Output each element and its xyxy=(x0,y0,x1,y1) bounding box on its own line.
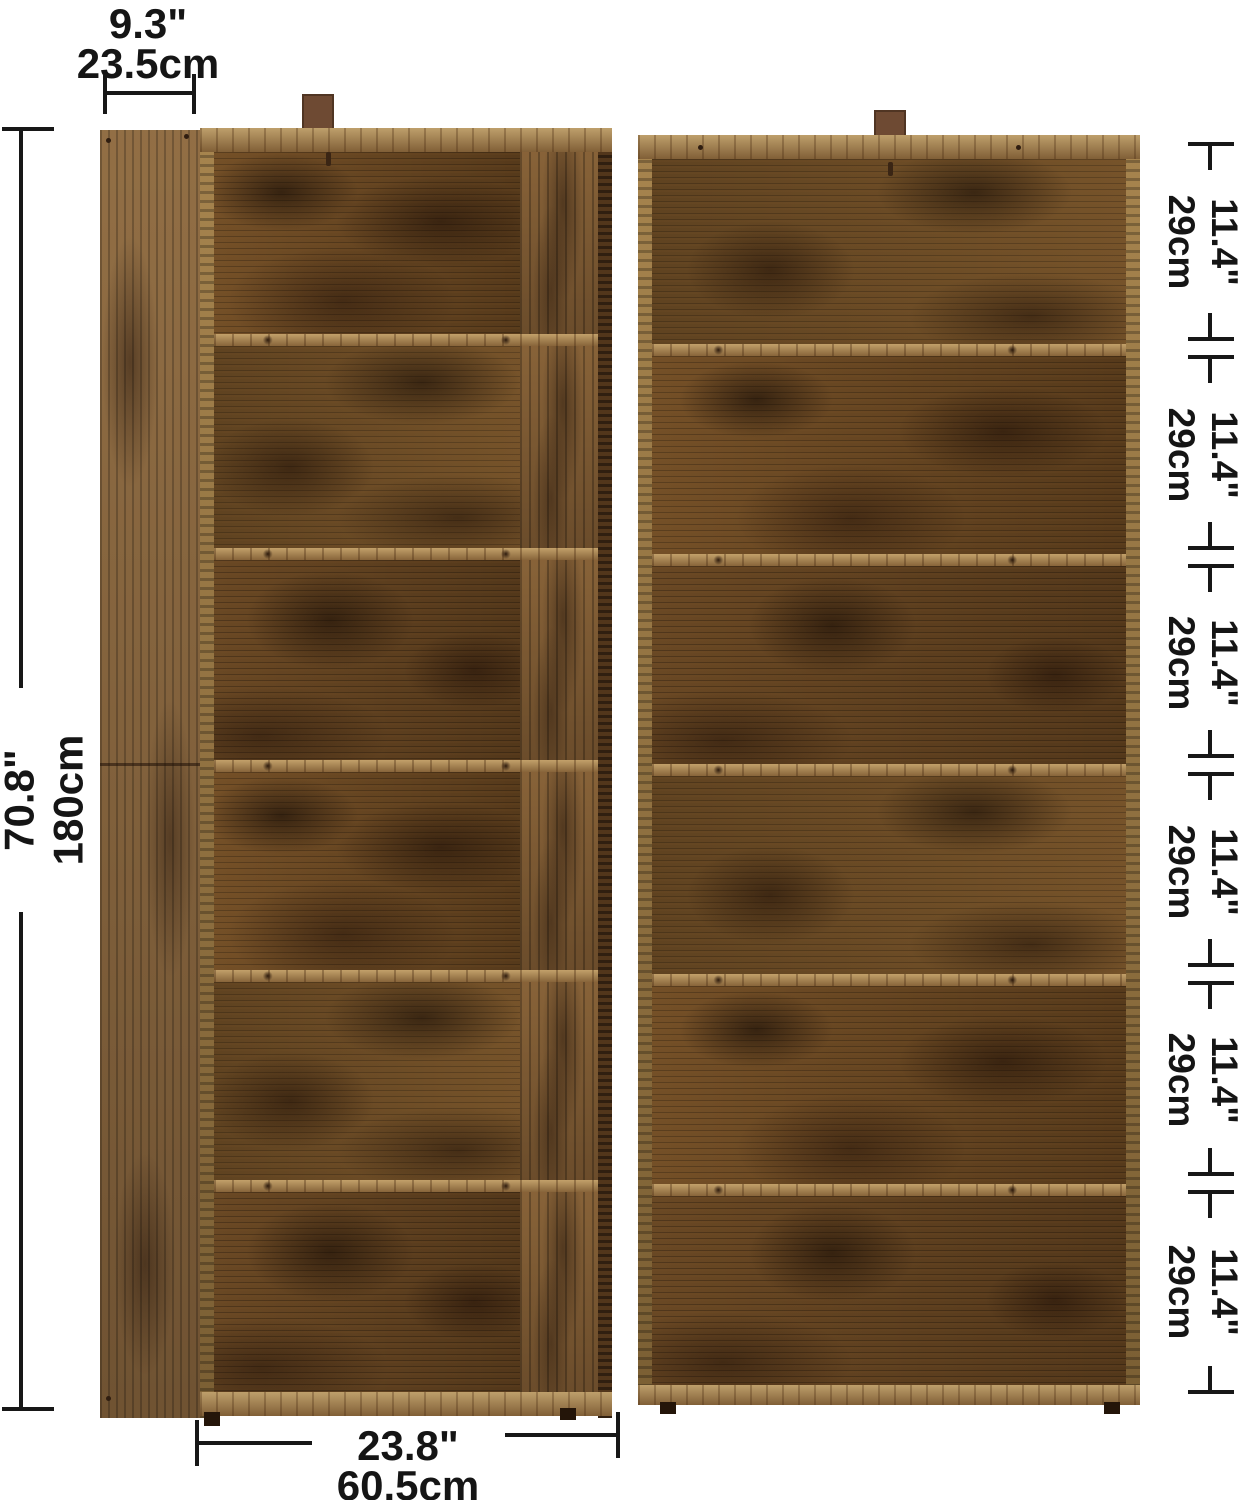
cabinet-foot xyxy=(660,1402,676,1414)
panel-seam xyxy=(100,763,200,766)
cabinet-foot xyxy=(1104,1402,1120,1414)
inner-side-wall xyxy=(520,1192,598,1392)
shelf-dim-stem xyxy=(1208,313,1212,337)
shelf-compartment xyxy=(214,152,520,334)
shelf-height-label: 11.4" 29cm xyxy=(1159,195,1245,290)
shelf-height-label: 11.4" 29cm xyxy=(1159,1245,1245,1340)
shelf-inches-label: 11.4" xyxy=(1202,1245,1245,1340)
depth-dim-tick xyxy=(192,74,196,114)
inner-side-wall xyxy=(520,772,598,970)
screw-icon xyxy=(184,134,189,139)
top-board xyxy=(638,135,1140,159)
shelf-cm-label: 29cm xyxy=(1159,1245,1202,1340)
shelf-inches-label: 11.4" xyxy=(1202,195,1245,290)
shelf-cm-label: 29cm xyxy=(1159,1033,1202,1128)
screw-icon xyxy=(698,145,703,150)
shelf-height-label: 11.4" 29cm xyxy=(1159,1033,1245,1128)
depth-dim-line xyxy=(103,91,196,95)
shelf-inches-label: 11.4" xyxy=(1202,825,1245,920)
product-dimension-diagram: 9.3" 23.5cm 70.8" 180cm 23.8" 60.5cm 11.… xyxy=(0,0,1247,1500)
shelf-dim-bar xyxy=(1188,963,1234,967)
shelf-compartment xyxy=(214,982,520,1180)
strap-slot xyxy=(888,162,893,176)
shelf-compartment xyxy=(652,986,1126,1184)
left-side-edge xyxy=(638,159,652,1405)
shelf-inches-label: 11.4" xyxy=(1202,1033,1245,1128)
shelf-height-label: 11.4" 29cm xyxy=(1159,825,1245,920)
shelf-compartment xyxy=(652,159,1126,344)
shelf-dim-stem xyxy=(1208,730,1212,754)
shelf-board xyxy=(652,974,1126,986)
height-inches-label: 70.8" xyxy=(0,735,44,866)
shelf-board xyxy=(214,1180,598,1192)
inner-side-wall xyxy=(520,346,598,548)
shelf-dim-bar xyxy=(1188,546,1234,550)
inner-side-wall xyxy=(520,560,598,760)
shelf-compartment xyxy=(214,560,520,760)
shelf-compartment xyxy=(652,356,1126,554)
bottom-board xyxy=(638,1385,1140,1405)
width-dim-line xyxy=(505,1433,618,1437)
cabinet-foot xyxy=(560,1408,576,1420)
screw-icon xyxy=(106,138,111,143)
bottom-board xyxy=(200,1392,612,1416)
shelf-compartment xyxy=(214,346,520,548)
shelf-dim-stem xyxy=(1208,939,1212,963)
width-dim-line xyxy=(199,1441,312,1445)
inner-side-wall xyxy=(520,982,598,1180)
shelf-dim-stem xyxy=(1208,1366,1212,1390)
shelf-compartment xyxy=(214,772,520,970)
height-dim-tick xyxy=(2,1407,54,1411)
shelf-cm-label: 29cm xyxy=(1159,825,1202,920)
shelf-dim-bar xyxy=(1188,754,1234,758)
width-dim-tick xyxy=(616,1412,620,1458)
shelf-dim-stem xyxy=(1208,522,1212,546)
shelf-height-label: 11.4" 29cm xyxy=(1159,408,1245,503)
cabinet-side-panel xyxy=(100,130,200,1418)
shelf-dim-bar xyxy=(1188,1172,1234,1176)
shelf-compartment xyxy=(652,776,1126,974)
cabinet-front xyxy=(200,128,612,1418)
right-side-edge xyxy=(1126,159,1140,1405)
height-label: 70.8" 180cm xyxy=(0,735,93,866)
height-cm-label: 180cm xyxy=(44,735,93,866)
shelf-board xyxy=(652,764,1126,776)
shelf-board xyxy=(214,548,598,560)
shelf-height-label: 11.4" 29cm xyxy=(1159,616,1245,711)
depth-dim-tick xyxy=(103,74,107,114)
shelf-dim-stem xyxy=(1208,359,1212,383)
shelf-dim-stem xyxy=(1208,985,1212,1009)
left-inner-edge xyxy=(200,152,214,1418)
inner-side-wall xyxy=(520,152,598,334)
strap-slot xyxy=(326,152,331,166)
shelf-dim-stem xyxy=(1208,1148,1212,1172)
shelf-cm-label: 29cm xyxy=(1159,195,1202,290)
shelf-cm-label: 29cm xyxy=(1159,408,1202,503)
right-outer-edge xyxy=(598,152,612,1418)
shelf-inches-label: 11.4" xyxy=(1202,616,1245,711)
shelf-dim-bar xyxy=(1188,337,1234,341)
shelf-compartment xyxy=(214,1192,520,1392)
shelf-board xyxy=(214,334,598,346)
screw-icon xyxy=(106,1396,111,1401)
shelf-dim-bar xyxy=(1188,1390,1234,1394)
height-dim-line xyxy=(19,127,23,688)
shelf-board xyxy=(652,554,1126,566)
shelf-inches-label: 11.4" xyxy=(1202,408,1245,503)
top-board xyxy=(200,128,612,152)
shelf-board xyxy=(652,1184,1126,1196)
shelf-cm-label: 29cm xyxy=(1159,616,1202,711)
shelf-compartment xyxy=(652,1196,1126,1385)
shelf-compartment xyxy=(652,566,1126,764)
cabinet-foot xyxy=(204,1412,220,1426)
shelf-dim-stem xyxy=(1208,568,1212,592)
cabinet-front xyxy=(638,135,1140,1405)
shelf-dim-stem xyxy=(1208,1194,1212,1218)
shelf-dim-stem xyxy=(1208,776,1212,800)
screw-icon xyxy=(1016,145,1021,150)
shelf-dim-stem xyxy=(1208,146,1212,170)
height-dim-line xyxy=(19,912,23,1411)
shelf-board xyxy=(214,760,598,772)
depth-cm-label: 23.5cm xyxy=(68,40,228,88)
height-dim-tick xyxy=(2,127,54,131)
shelf-board xyxy=(214,970,598,982)
width-cm-label: 60.5cm xyxy=(318,1462,498,1500)
shelf-board xyxy=(652,344,1126,356)
